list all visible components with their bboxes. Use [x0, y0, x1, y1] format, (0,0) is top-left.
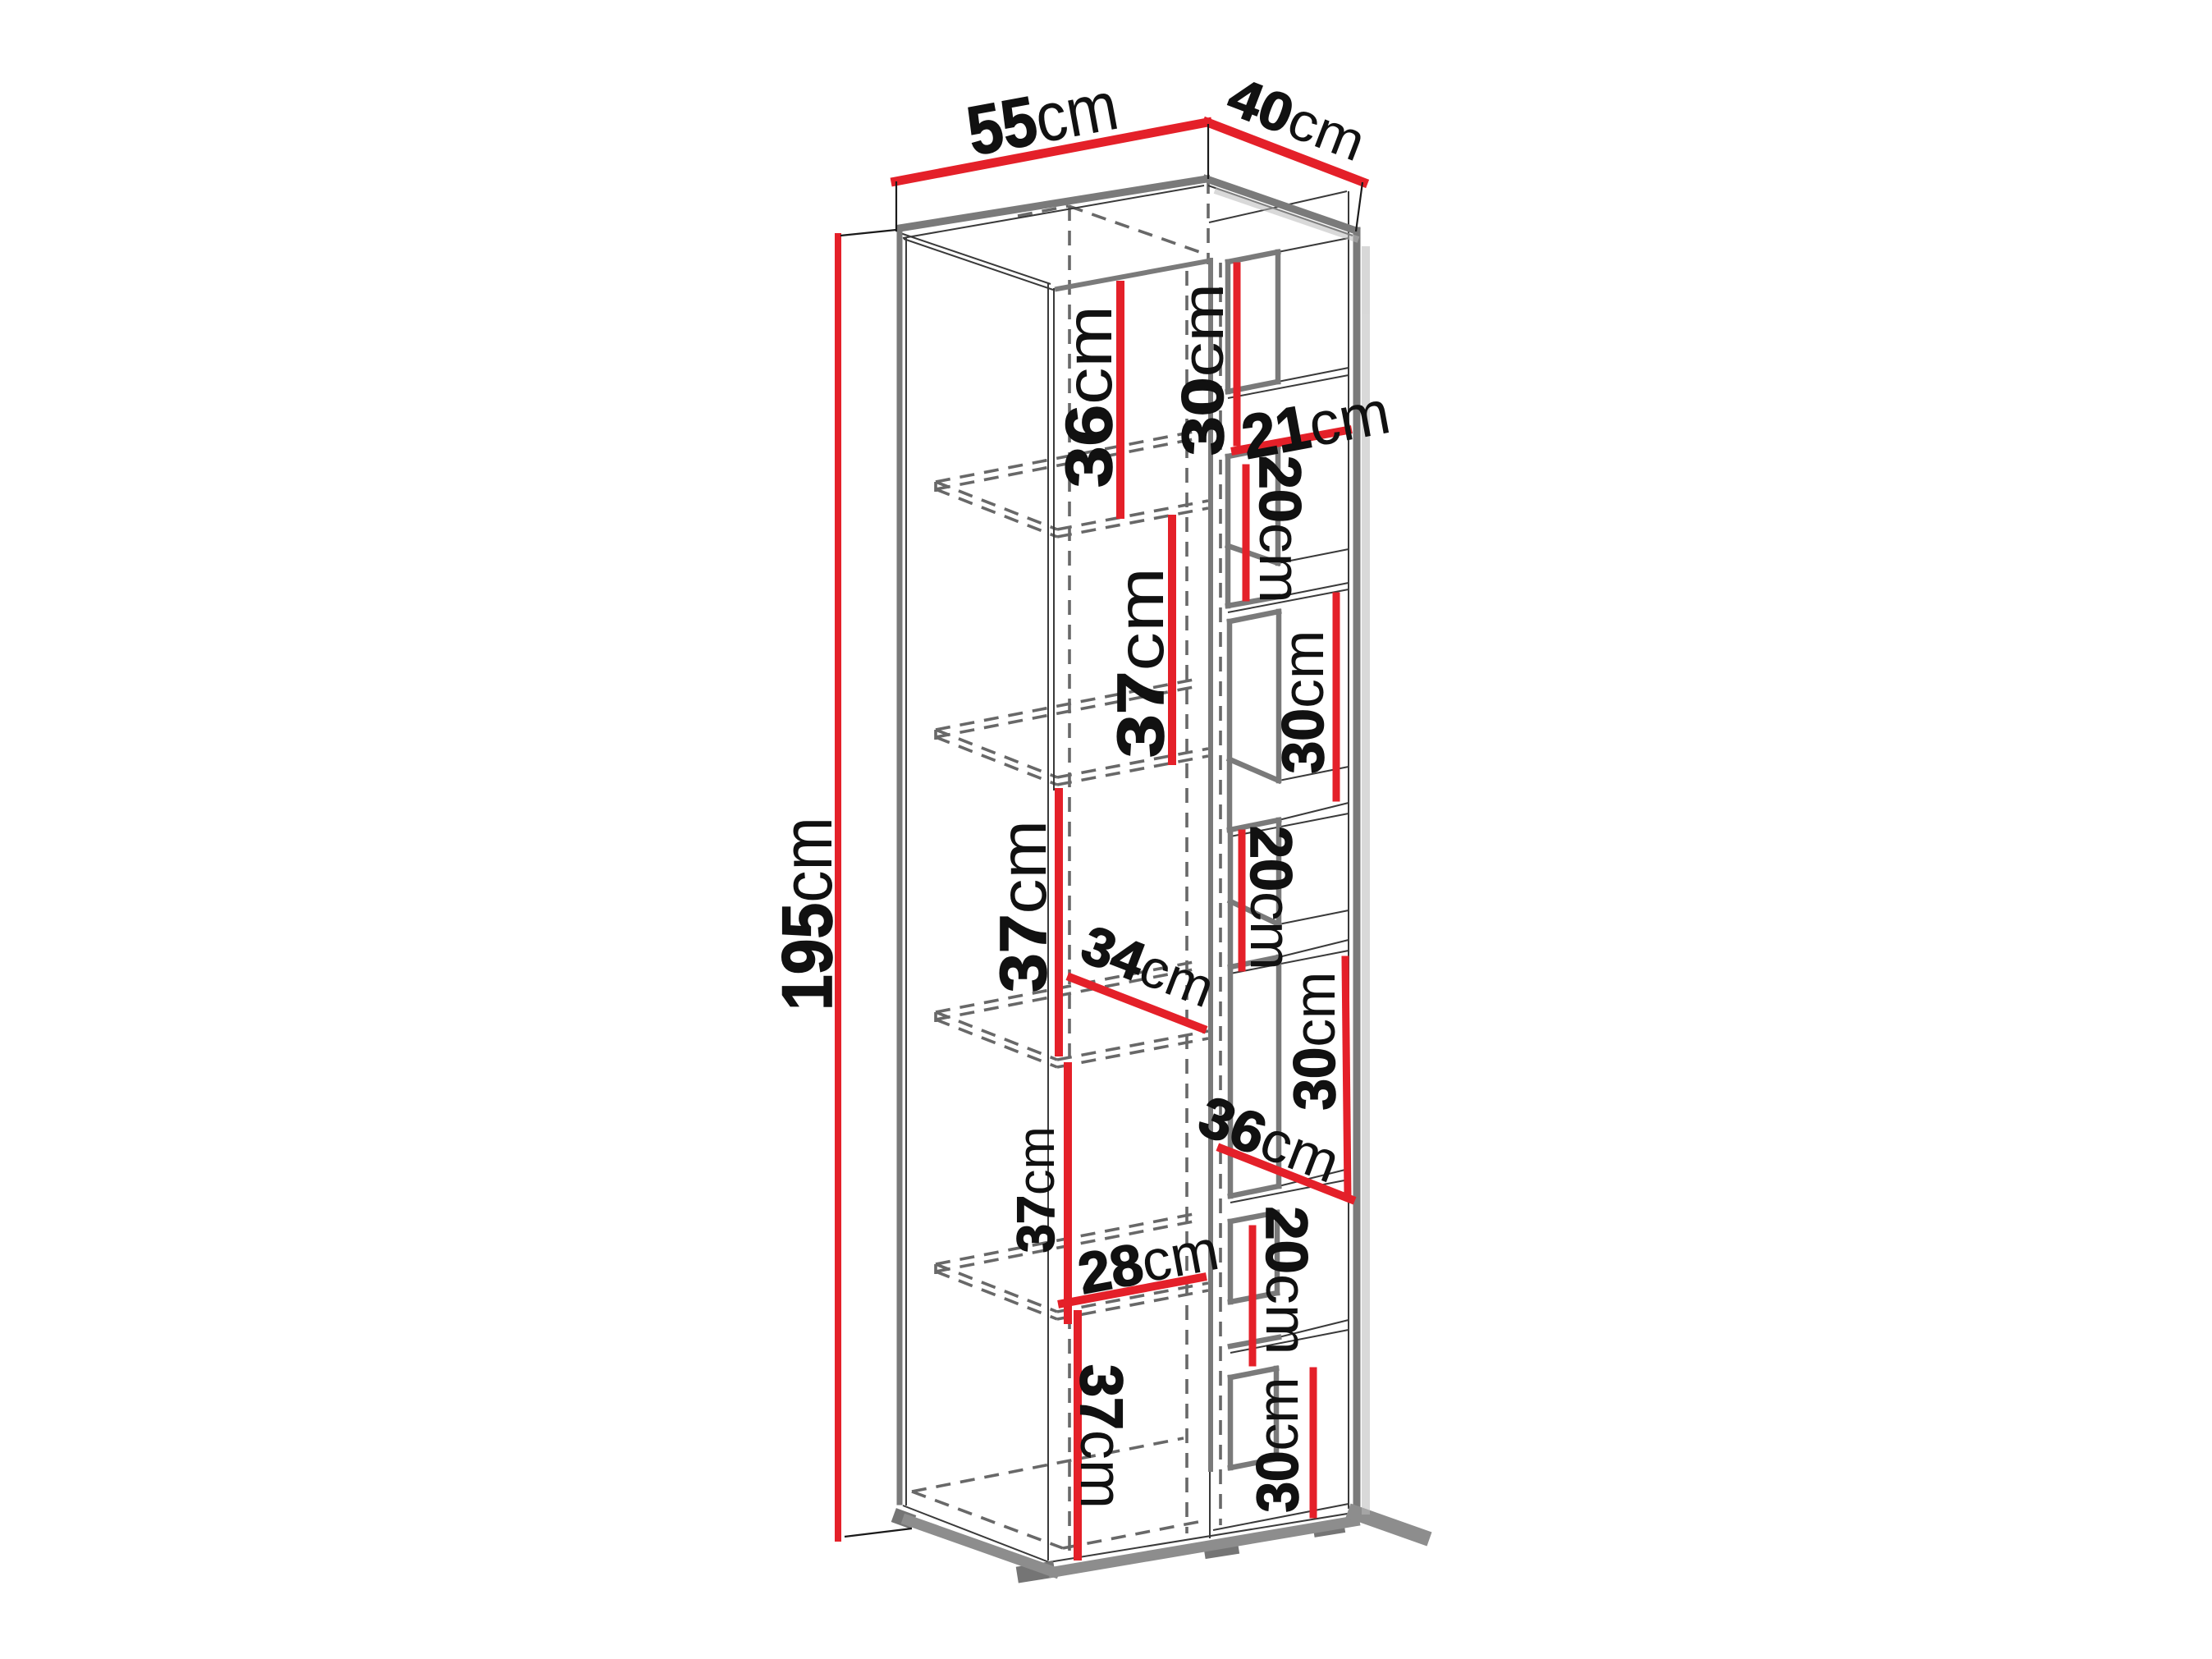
svg-text:195cm: 195cm	[768, 817, 847, 1011]
svg-text:37cm: 37cm	[987, 820, 1060, 992]
svg-text:37cm: 37cm	[1006, 1126, 1065, 1253]
svg-text:20cm: 20cm	[1253, 1207, 1318, 1355]
svg-text:37cm: 37cm	[1104, 567, 1177, 758]
svg-text:20cm: 20cm	[1238, 826, 1303, 970]
svg-text:20cm: 20cm	[1247, 456, 1312, 603]
svg-text:30cm: 30cm	[1283, 972, 1348, 1111]
svg-text:30cm: 30cm	[1171, 283, 1236, 456]
svg-text:36cm: 36cm	[1052, 305, 1125, 488]
svg-text:30cm: 30cm	[1271, 630, 1336, 773]
svg-text:30cm: 30cm	[1246, 1377, 1311, 1513]
svg-text:37cm: 37cm	[1068, 1364, 1134, 1509]
